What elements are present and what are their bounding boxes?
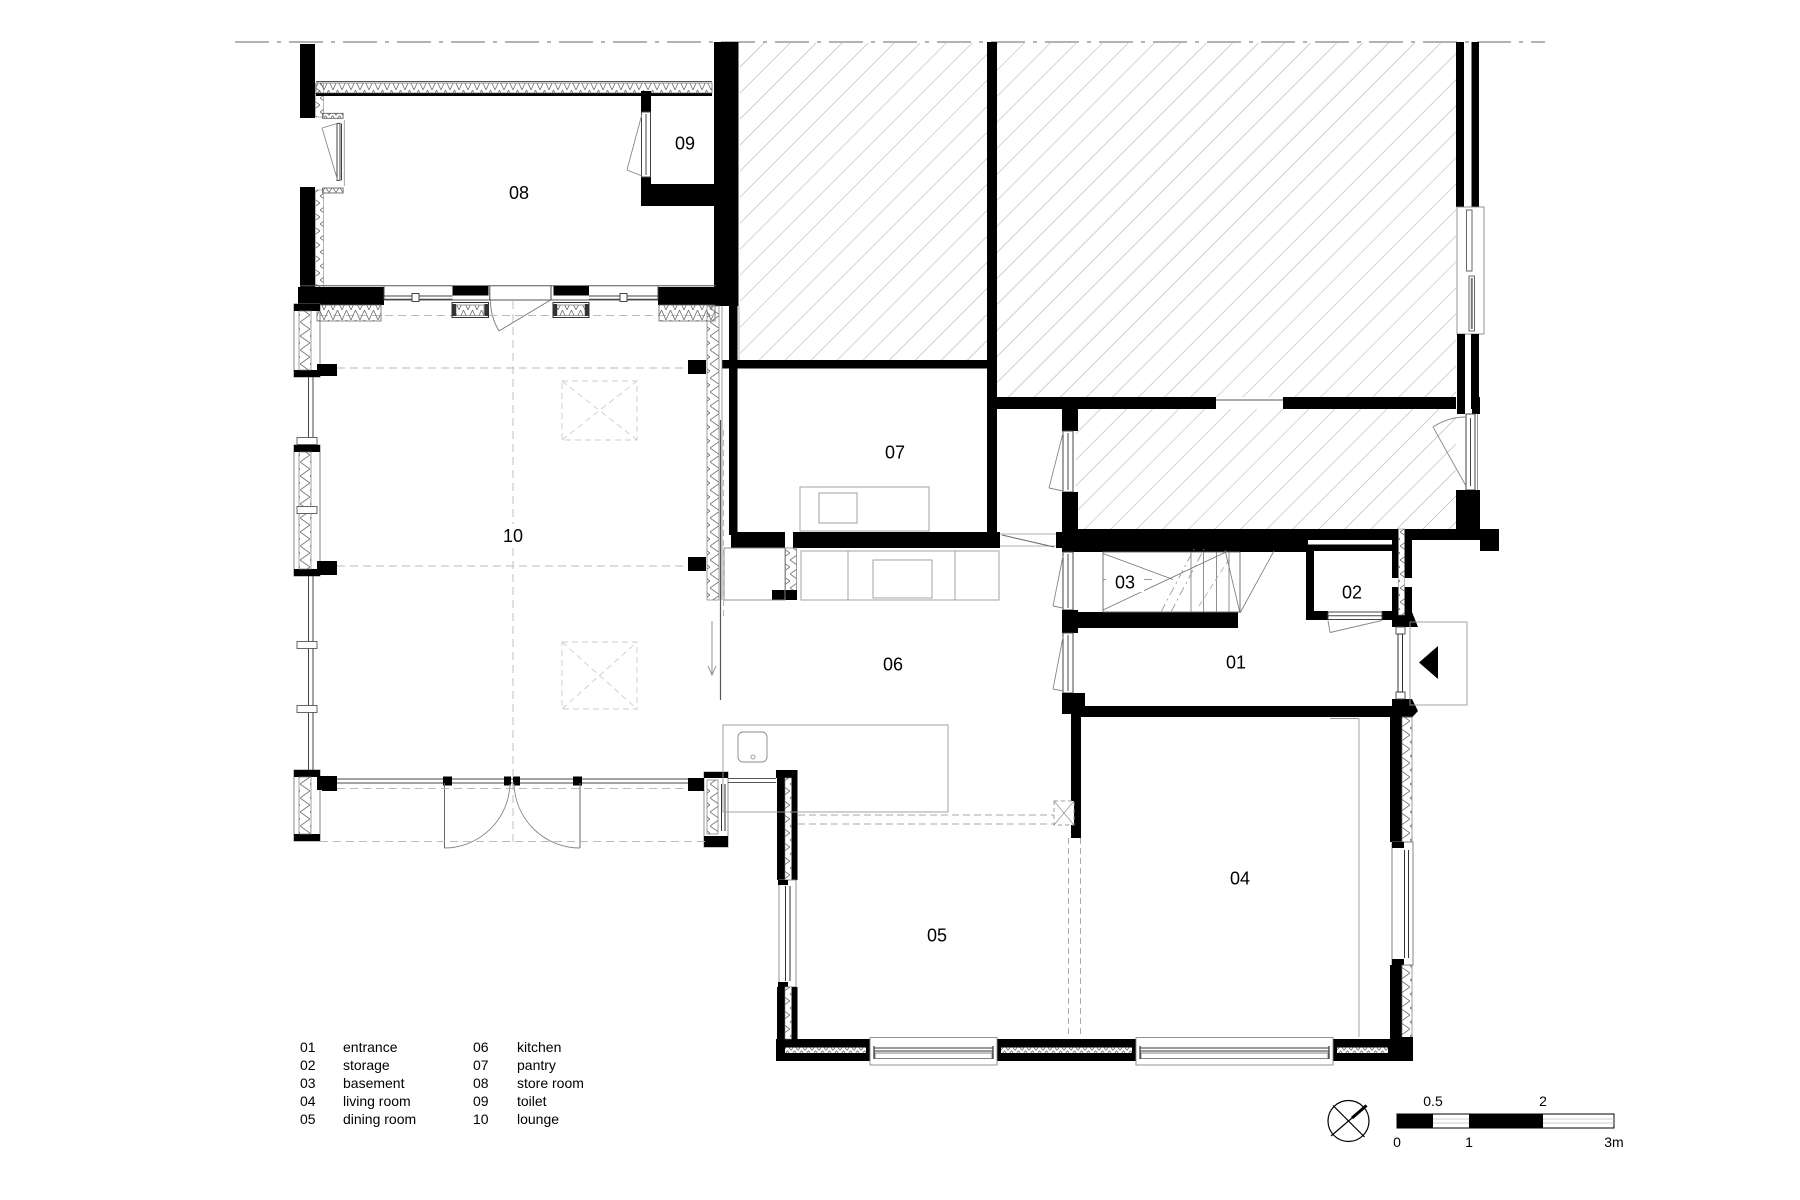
svg-text:04: 04	[1230, 869, 1250, 889]
svg-text:05: 05	[300, 1111, 316, 1127]
svg-text:06: 06	[473, 1039, 489, 1055]
svg-text:storage: storage	[343, 1057, 390, 1073]
svg-text:10: 10	[473, 1111, 489, 1127]
svg-text:3m: 3m	[1604, 1134, 1623, 1150]
svg-text:02: 02	[300, 1057, 316, 1073]
svg-text:08: 08	[473, 1075, 489, 1091]
svg-text:dining room: dining room	[343, 1111, 416, 1127]
svg-text:06: 06	[883, 655, 903, 675]
svg-text:entrance: entrance	[343, 1039, 398, 1055]
svg-text:toilet: toilet	[517, 1093, 547, 1109]
svg-text:09: 09	[473, 1093, 489, 1109]
svg-text:2: 2	[1539, 1093, 1547, 1109]
svg-text:08: 08	[509, 183, 529, 203]
svg-text:basement: basement	[343, 1075, 405, 1091]
svg-text:0.5: 0.5	[1423, 1093, 1443, 1109]
svg-text:09: 09	[675, 134, 695, 154]
svg-text:04: 04	[300, 1093, 316, 1109]
svg-text:living room: living room	[343, 1093, 411, 1109]
svg-text:07: 07	[473, 1057, 489, 1073]
svg-text:1: 1	[1465, 1134, 1473, 1150]
svg-text:pantry: pantry	[517, 1057, 556, 1073]
svg-text:01: 01	[300, 1039, 316, 1055]
svg-text:10: 10	[503, 526, 523, 546]
svg-text:07: 07	[885, 443, 905, 463]
svg-text:lounge: lounge	[517, 1111, 559, 1127]
svg-text:05: 05	[927, 926, 947, 946]
svg-text:02: 02	[1342, 583, 1362, 603]
svg-text:0: 0	[1393, 1134, 1401, 1150]
svg-text:03: 03	[1115, 573, 1135, 593]
svg-text:03: 03	[300, 1075, 316, 1091]
svg-text:store room: store room	[517, 1075, 584, 1091]
svg-text:kitchen: kitchen	[517, 1039, 561, 1055]
svg-text:01: 01	[1226, 653, 1246, 673]
